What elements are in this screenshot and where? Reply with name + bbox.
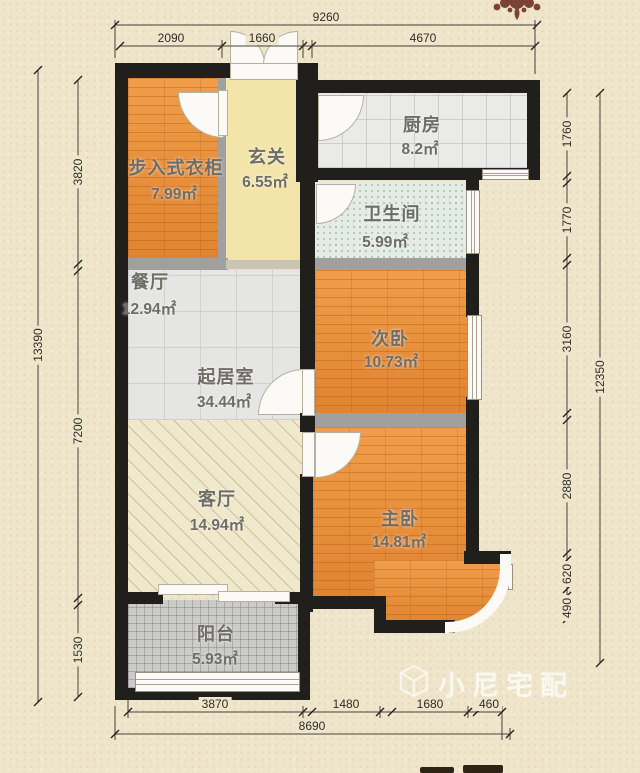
room-area-parlor: 14.94㎡ — [190, 513, 244, 535]
room-label-kitchen: 厨房 — [403, 111, 441, 137]
room-label-balcony: 阳台 — [197, 620, 235, 646]
wall-segment — [305, 258, 468, 270]
wall-segment — [466, 252, 479, 317]
wall-segment — [300, 180, 315, 369]
wall-segment — [305, 80, 540, 93]
cropped-caption-fragment — [420, 767, 454, 773]
dim-top-1: 2090 — [155, 31, 188, 45]
wall-segment — [302, 596, 386, 609]
kitchen-window — [482, 169, 529, 180]
room-label-dining: 餐厅 — [131, 268, 169, 294]
room-label-closet: 步入式衣柜 — [129, 154, 224, 180]
dim-top-3: 4670 — [407, 31, 440, 45]
wall-segment — [313, 413, 468, 427]
threshold — [226, 260, 300, 269]
dim-left-2: 7200 — [71, 415, 85, 448]
room-area-dining: 12.94㎡ — [122, 297, 176, 319]
bedroom2-door — [302, 369, 315, 416]
dim-right-6: 490 — [560, 595, 574, 621]
sliding-door — [218, 591, 290, 602]
dim-right-2: 1770 — [560, 204, 574, 237]
dim-top-total: 9260 — [310, 10, 343, 24]
room-area-master: 14.81㎡ — [372, 530, 426, 552]
wall-segment — [115, 63, 230, 78]
dim-left-1: 3820 — [71, 156, 85, 189]
entrance-door — [230, 63, 298, 80]
wall-segment — [466, 397, 479, 553]
wall-segment — [527, 80, 540, 180]
dim-bottom-1: 3870 — [199, 697, 232, 711]
dim-left-total: 13390 — [31, 325, 45, 364]
cropped-caption-fragment — [463, 765, 503, 773]
floor-plan: 9260 2090 1660 4670 3870 1480 1680 460 8… — [0, 0, 640, 773]
room-area-living: 34.44㎡ — [197, 390, 251, 412]
room-label-master: 主卧 — [381, 505, 419, 531]
room-area-balcony: 5.93㎡ — [192, 647, 238, 669]
wall-segment — [115, 63, 128, 700]
room-label-bathroom: 卫生间 — [364, 200, 421, 226]
room-label-parlor: 客厅 — [198, 485, 236, 511]
dim-right-total: 12350 — [593, 357, 607, 396]
watermark-text: 小尼宅配 — [438, 664, 574, 703]
closet-door — [218, 90, 228, 136]
room-label-entry: 玄关 — [248, 143, 286, 169]
dim-right-5: 620 — [560, 561, 574, 587]
room-area-bedroom2: 10.73㎡ — [364, 350, 418, 372]
master-bay-window-arc — [445, 554, 511, 633]
dim-left-3: 1530 — [71, 634, 85, 667]
bedroom2-window — [467, 315, 482, 400]
room-area-bathroom: 5.99㎡ — [362, 230, 408, 252]
balcony-window — [135, 672, 300, 692]
room-area-closet: 7.99㎡ — [151, 182, 197, 204]
watermark-cube-icon — [398, 664, 430, 703]
room-area-kitchen: 8.2㎡ — [401, 137, 438, 159]
room-label-bedroom2: 次卧 — [371, 325, 409, 351]
master-door — [302, 432, 315, 477]
corner-ornament-icon — [486, 0, 548, 20]
dim-right-4: 2880 — [560, 470, 574, 503]
watermark: 小尼宅配 — [398, 664, 588, 702]
dim-right-3: 3160 — [560, 323, 574, 356]
dim-bottom-2: 1480 — [330, 697, 363, 711]
dim-top-2: 1660 — [246, 31, 279, 45]
dim-bottom-total: 8690 — [296, 719, 329, 733]
room-label-living: 起居室 — [198, 363, 255, 389]
bathroom-window — [466, 190, 480, 254]
dim-right-1: 1760 — [560, 118, 574, 151]
room-area-entry: 6.55㎡ — [242, 170, 288, 192]
